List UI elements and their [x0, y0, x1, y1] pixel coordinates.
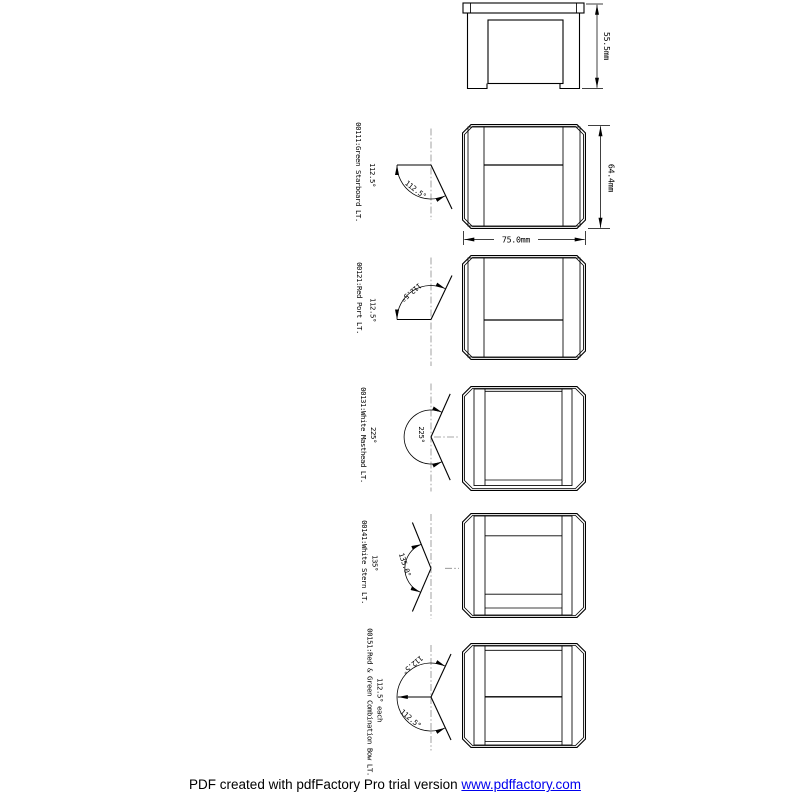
extension-lines	[582, 4, 603, 89]
masthead-arc-label: 225°	[417, 426, 426, 442]
combination-view: 00151:Red & Green Combination Bow LT. 11…	[366, 628, 586, 776]
pdf-footer: PDF created with pdfFactory Pro trial ve…	[189, 777, 581, 792]
front-height-dimension: 55.5mm	[582, 4, 612, 89]
angle-ray-upper	[431, 394, 450, 437]
stern-view: 00141:White Stern LT. 135° 135.0°	[360, 514, 585, 619]
starboard-arc-label: 112.5°	[403, 178, 428, 200]
stern-id-label: 00141:White Stern LT.	[360, 520, 369, 604]
stern-angle-diagram: 135.0°	[397, 514, 459, 619]
masthead-angle-diagram: 225°	[404, 384, 459, 492]
technical-drawing: 55.5mm 00111:Green Starboard LT. 112.5° …	[0, 0, 800, 800]
pdf-drawing-page: 55.5mm 00111:Green Starboard LT. 112.5° …	[0, 0, 800, 800]
port-side-bands	[484, 258, 563, 357]
port-id-label: 00121:Red Port LT.	[355, 262, 364, 334]
pdf-footer-text: PDF created with pdfFactory Pro trial ve…	[189, 777, 461, 792]
front-cap-tabs	[471, 3, 577, 13]
combination-inner	[474, 646, 572, 745]
port-angle-label: 112.5°	[369, 298, 378, 322]
combination-arc-label-lower: 112.5°	[398, 707, 423, 730]
height-dim-label: 64.4mm	[607, 164, 617, 192]
starboard-case	[463, 125, 586, 229]
angle-ray-lower	[412, 568, 431, 611]
masthead-angle-label: 225°	[369, 427, 378, 443]
angle-ray-slanted	[431, 276, 452, 320]
masthead-id-label: 00131:White Masthead LT.	[359, 387, 368, 483]
front-cap	[463, 3, 584, 13]
pdffactory-link[interactable]: www.pdffactory.com	[461, 777, 581, 792]
port-case	[463, 256, 586, 360]
combination-lens-lines	[485, 650, 562, 741]
masthead-side-bands	[485, 389, 562, 486]
starboard-width-dimension: 75.0mm	[464, 231, 586, 245]
stern-arc-label: 135.0°	[397, 552, 413, 578]
combination-angle-diagram: 112.5° 112.5°	[397, 645, 451, 751]
masthead-view: 00131:White Masthead LT. 225° 225°	[359, 384, 585, 492]
starboard-view: 00111:Green Starboard LT. 112.5° 112.5° …	[354, 122, 617, 245]
port-arc-label: 112.5°	[399, 281, 424, 304]
stern-case	[463, 514, 586, 618]
angle-ray-lower	[431, 437, 450, 480]
angle-ray-upper	[431, 654, 451, 697]
combination-side-bands	[485, 646, 562, 745]
stern-angle-label: 135°	[371, 555, 380, 571]
stern-side-bands	[485, 516, 562, 615]
starboard-height-dimension: 64.4mm	[588, 126, 617, 229]
starboard-angle-diagram: 112.5°	[397, 129, 452, 221]
angle-ray-upper	[412, 523, 431, 569]
width-dim-label: 75.0mm	[502, 235, 530, 245]
angle-ray-lower	[431, 697, 451, 740]
masthead-inner	[474, 389, 572, 486]
port-view: 00121:Red Port LT. 112.5° 112.5°	[355, 256, 585, 366]
starboard-id-label: 00111:Green Starboard LT.	[354, 122, 363, 222]
combination-arc-label-upper: 112.5°	[400, 654, 425, 677]
masthead-case	[463, 387, 586, 491]
combination-id-label: 00151:Red & Green Combination Bow LT.	[366, 628, 375, 776]
front-height-dim-label: 55.5mm	[602, 32, 612, 60]
stern-inner	[474, 516, 572, 615]
masthead-lens-lines	[485, 391, 562, 480]
combination-angle-label: 112.5° each	[376, 678, 385, 722]
starboard-side-bands	[484, 127, 563, 226]
front-view: 55.5mm	[463, 3, 612, 89]
front-inner-housing	[488, 20, 563, 84]
angle-ray-slanted	[431, 165, 452, 209]
combination-case	[463, 644, 586, 748]
stern-lens-lines	[485, 536, 562, 608]
port-angle-diagram: 112.5°	[397, 258, 452, 367]
starboard-angle-label: 112.5°	[368, 163, 377, 187]
